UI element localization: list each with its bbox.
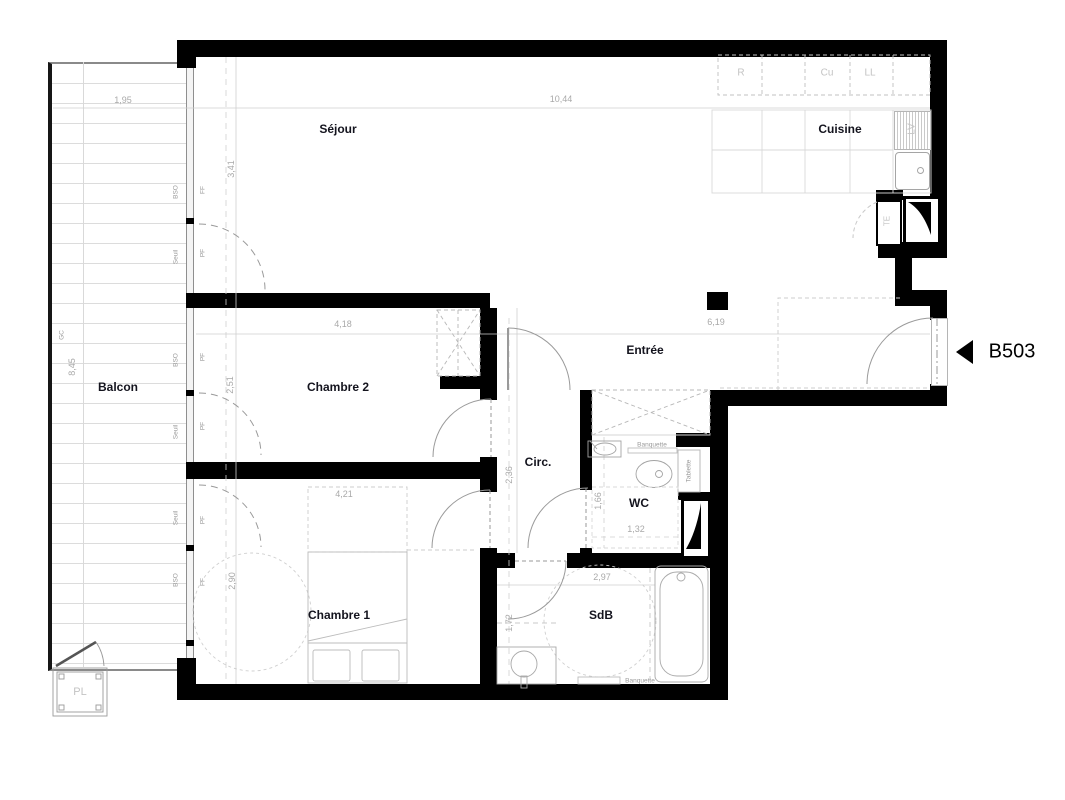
dim-balcony-length: 8,45 (67, 358, 77, 376)
dim-entree-width: 6,19 (707, 317, 725, 327)
room-label-chambre2: Chambre 2 (307, 380, 369, 394)
entree-dashed-zone (720, 298, 930, 390)
fridge-label: R (737, 68, 744, 79)
room-label-chambre1: Chambre 1 (308, 608, 370, 622)
cooktop-label: Cu (821, 68, 834, 79)
room-label-sdb: SdB (589, 608, 613, 622)
dim-chambre2-depth: 2,51 (225, 376, 235, 394)
entree-closet (592, 390, 710, 435)
window-label-3: PF (200, 422, 207, 430)
dim-circ-length: 2,36 (504, 466, 514, 484)
dimension-lines (53, 57, 930, 684)
linework-layer (0, 0, 1065, 800)
guardrail-label: GC (59, 330, 66, 340)
dim-balcony-width: 1,95 (114, 95, 132, 105)
room-label-sejour: Séjour (319, 122, 356, 136)
window-label-4: PF (200, 516, 207, 524)
dim-sdb-depth: 1,72 (504, 614, 514, 632)
window-label-1: PF (200, 249, 207, 257)
wc-shelf-label: Tablette (686, 460, 693, 483)
dim-wc-depth: 1,66 (593, 492, 603, 510)
room-label-cuisine: Cuisine (818, 122, 861, 136)
room-label-entree: Entrée (626, 343, 663, 357)
turning-circles (193, 553, 656, 677)
balcony-edge-label-5: BSO (173, 573, 180, 587)
bed (308, 487, 476, 683)
balcony-edge-label-3: Seuil (173, 425, 180, 439)
shaft-door-wedges (686, 202, 931, 549)
wc-bench-label: Banquette (637, 442, 667, 449)
washing-machine-label: LL (864, 68, 875, 79)
dim-chambre2-width: 4,18 (334, 319, 352, 329)
door-swings (199, 202, 937, 619)
unit-label: B503 (989, 341, 1036, 364)
balcony-edge-label-2: BSO (173, 353, 180, 367)
room-label-placard: PL (73, 686, 86, 698)
sdb-bench-label: Banquette (625, 678, 655, 685)
window-label-0: FF (200, 186, 207, 194)
chambre2-closet (437, 310, 480, 376)
dim-chambre1-depth: 2,90 (227, 572, 237, 590)
room-label-wc: WC (629, 496, 649, 510)
floor-plan: Séjour Cuisine Balcon Chambre 2 Chambre … (0, 0, 1065, 800)
unit-pointer-icon (956, 340, 973, 364)
dim-wc-width: 1,32 (627, 524, 645, 534)
dim-living-width: 10,44 (550, 94, 573, 104)
pl-closet (53, 642, 107, 716)
balcony-edge-label-1: Seuil (173, 250, 180, 264)
room-label-balcon: Balcon (98, 380, 138, 394)
room-label-circ: Circ. (525, 455, 552, 469)
dim-living-depth: 3,41 (226, 160, 236, 178)
balcony-edge-label-0: BSO (173, 185, 180, 199)
dim-bed-zone-width: 4,21 (335, 489, 353, 499)
electrical-panel-label: TE (883, 216, 892, 226)
balcony-edge-label-4: Seuil (173, 511, 180, 525)
sdb-fixtures (497, 566, 708, 688)
window-label-2: PF (200, 353, 207, 361)
wc-fixtures (588, 435, 710, 548)
dishwasher-label: LV (907, 123, 918, 135)
window-label-5: FF (200, 578, 207, 586)
dim-sdb-width: 2,97 (593, 572, 611, 582)
